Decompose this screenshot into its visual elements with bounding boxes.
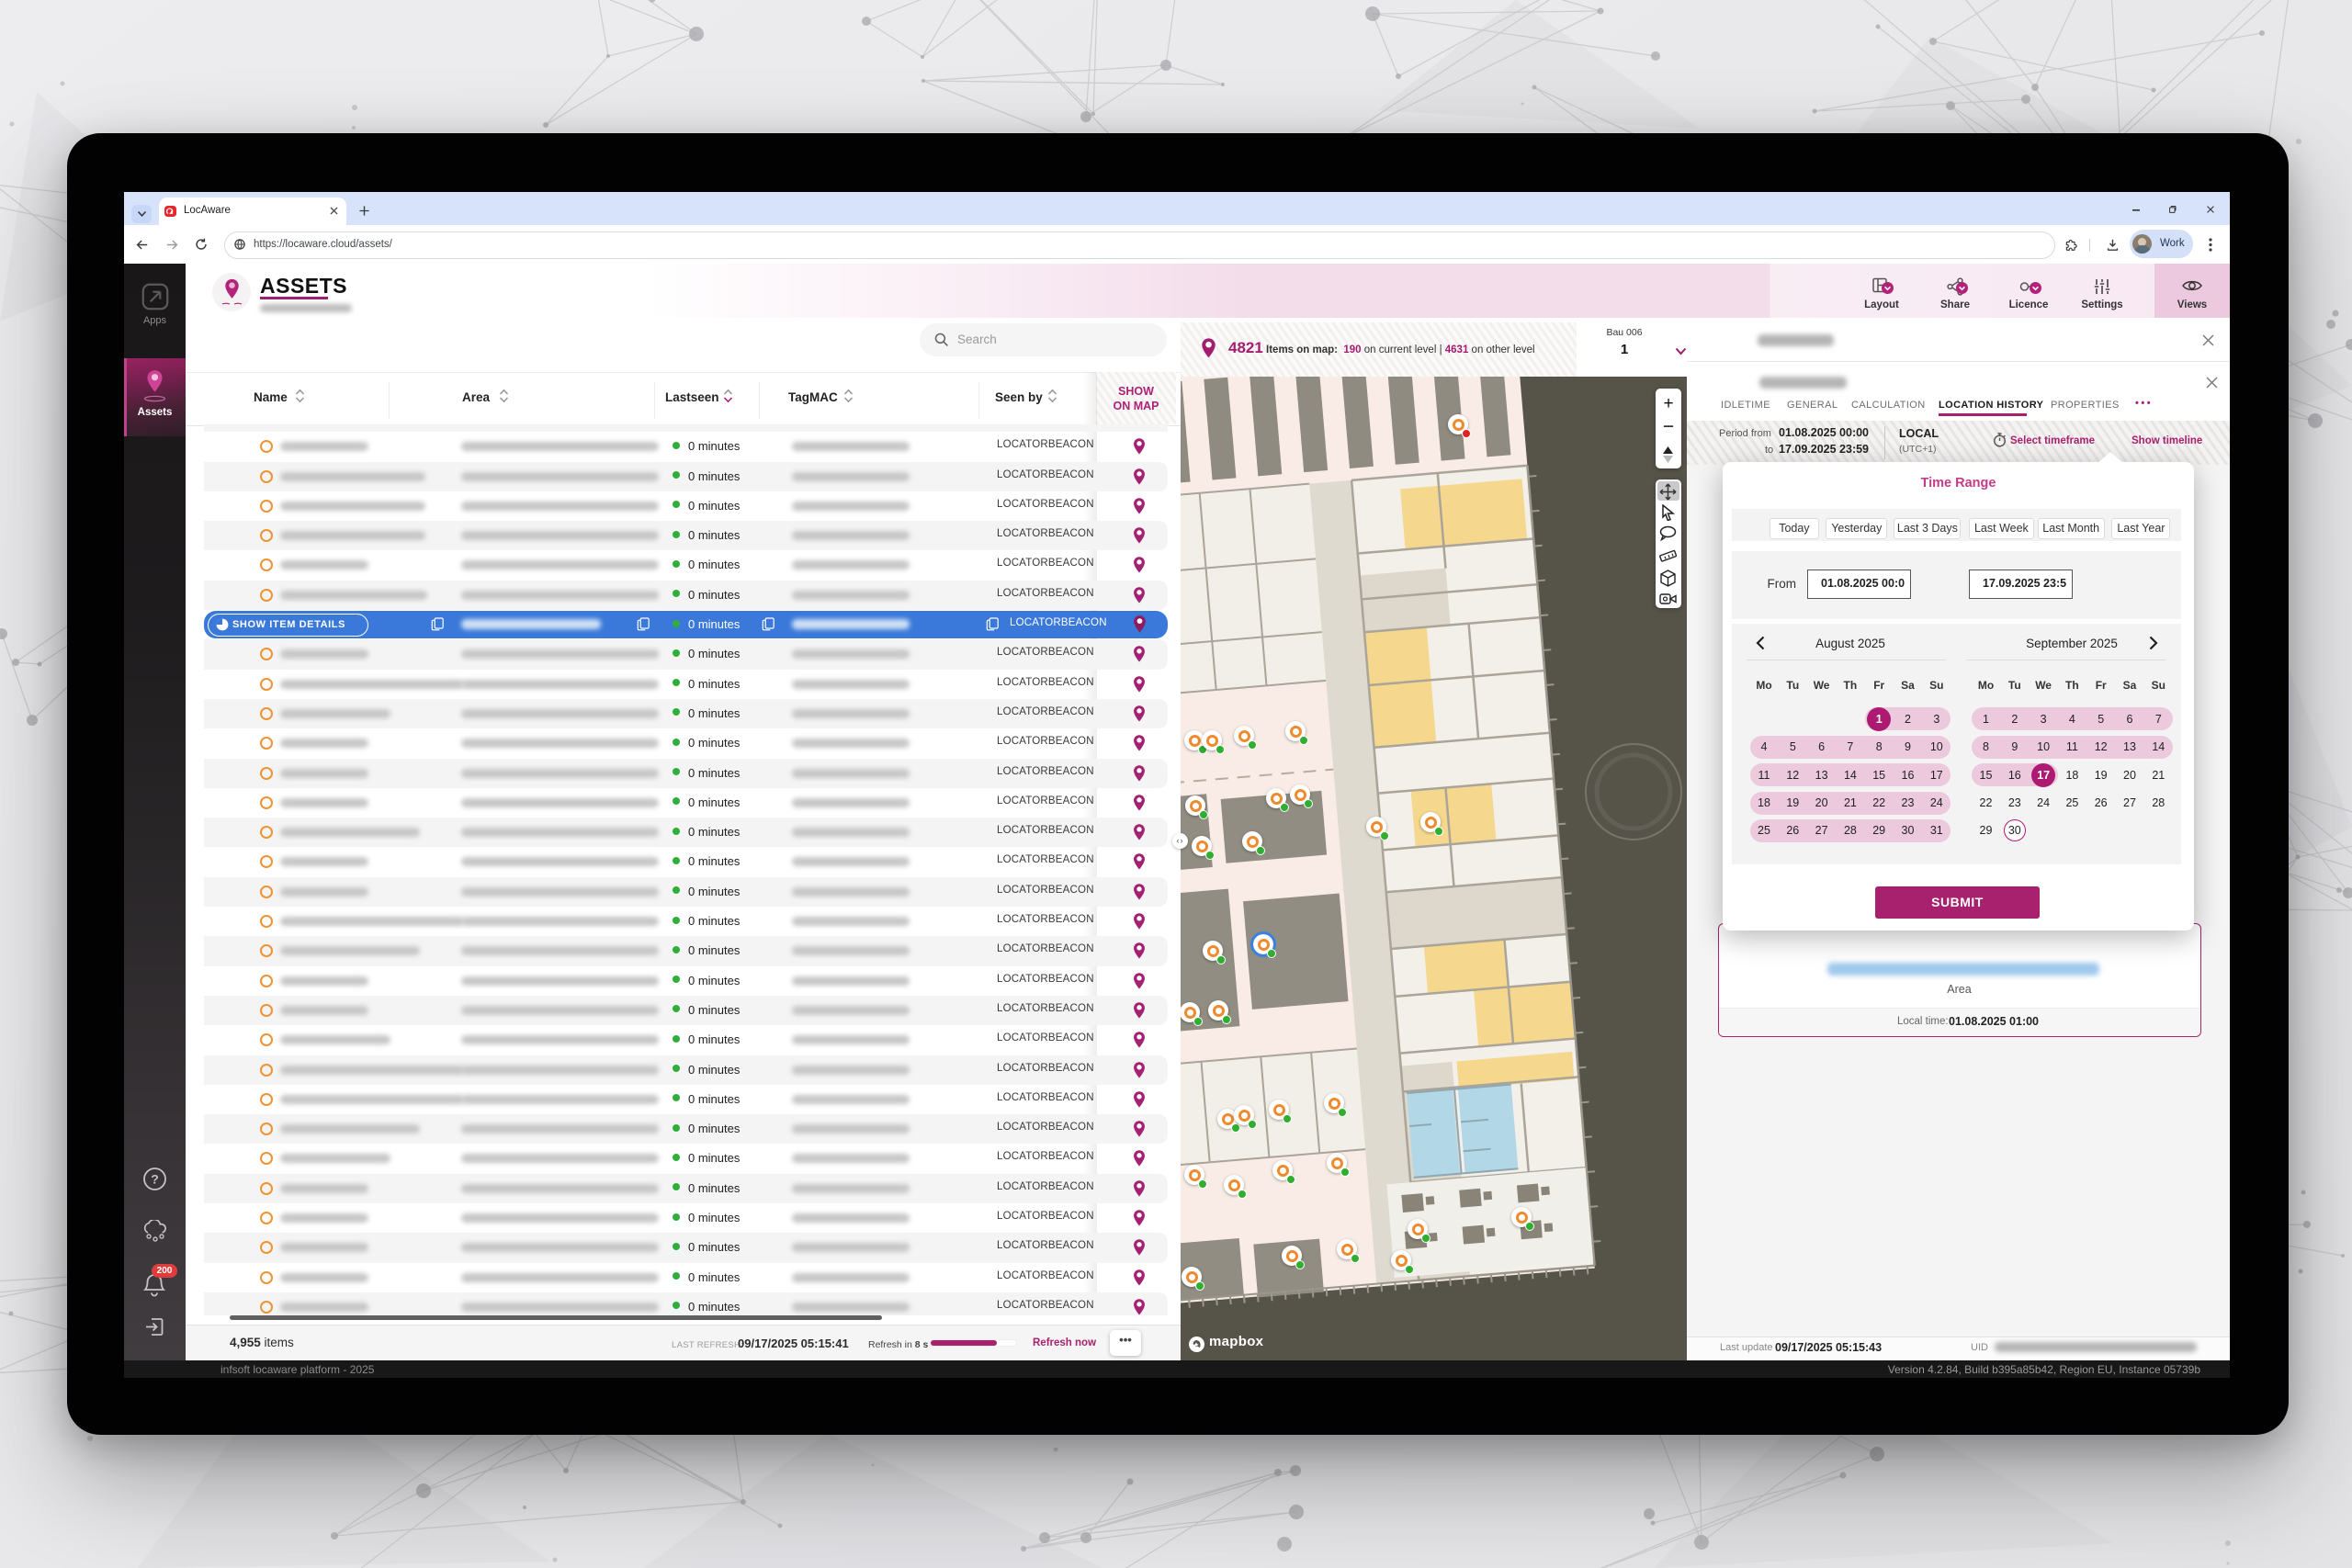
svg-text:?: ? <box>151 1172 159 1187</box>
